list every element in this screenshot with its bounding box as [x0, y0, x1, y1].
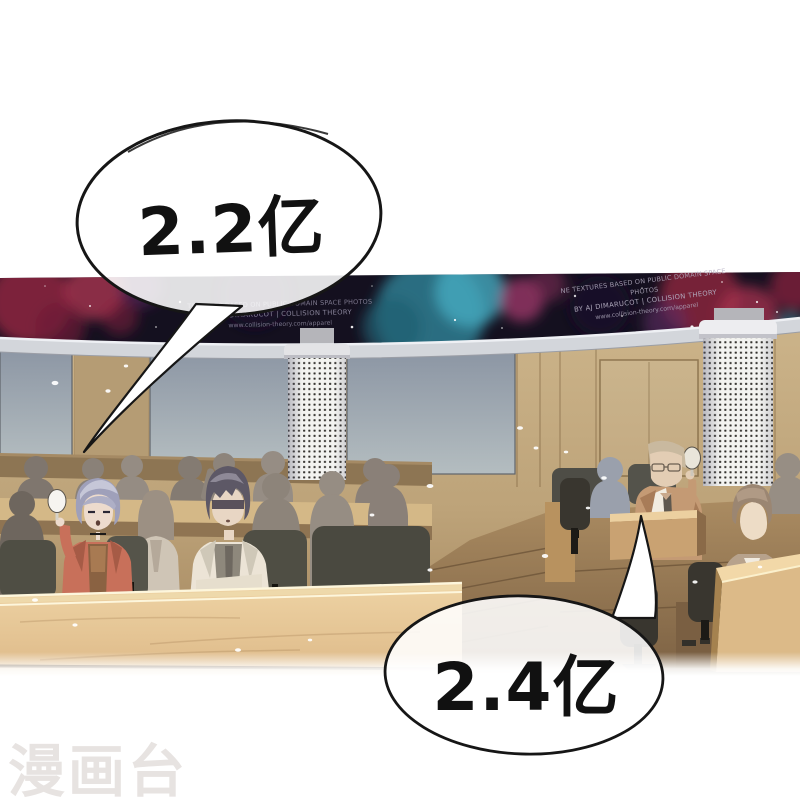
ceiling-credit-left: TEXTURES BASED ON PUBLIC DOMAIN SPACE PH… — [158, 296, 403, 333]
auction-hall-scene — [0, 272, 800, 676]
elder-desk — [610, 510, 706, 560]
watermark-manhuatai: 漫画台 — [8, 726, 188, 800]
bid-amount-1: 2.2亿 — [84, 171, 377, 277]
perforated-column-right — [699, 320, 777, 486]
bid-amount-2: 2.4亿 — [392, 634, 660, 730]
perforated-column-center — [284, 344, 350, 480]
comic-panel: TEXTURES BASED ON PUBLIC DOMAIN SPACE PH… — [0, 0, 800, 800]
